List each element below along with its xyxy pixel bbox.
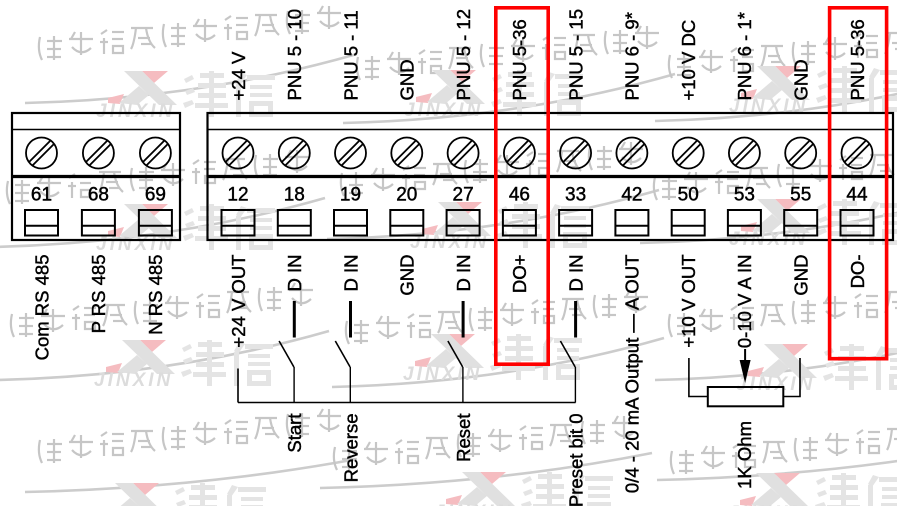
svg-text:DO-: DO- xyxy=(847,255,868,289)
svg-text:D IN: D IN xyxy=(340,255,361,292)
svg-text:GND: GND xyxy=(791,255,812,296)
svg-text:Reverse: Reverse xyxy=(340,414,361,483)
svg-text:D IN: D IN xyxy=(453,255,474,292)
svg-text:12: 12 xyxy=(227,185,248,206)
svg-text:Com RS 485: Com RS 485 xyxy=(31,255,52,361)
svg-text:N RS 485: N RS 485 xyxy=(145,255,166,335)
svg-text:33: 33 xyxy=(565,185,586,206)
svg-text:GND: GND xyxy=(397,255,418,296)
svg-text:+10 V DC: +10 V DC xyxy=(678,20,699,101)
svg-text:0-10 V A IN: 0-10 V A IN xyxy=(734,255,755,349)
svg-text:D IN: D IN xyxy=(565,255,586,292)
svg-text:18: 18 xyxy=(284,185,305,206)
svg-text:DO+: DO+ xyxy=(509,255,530,294)
